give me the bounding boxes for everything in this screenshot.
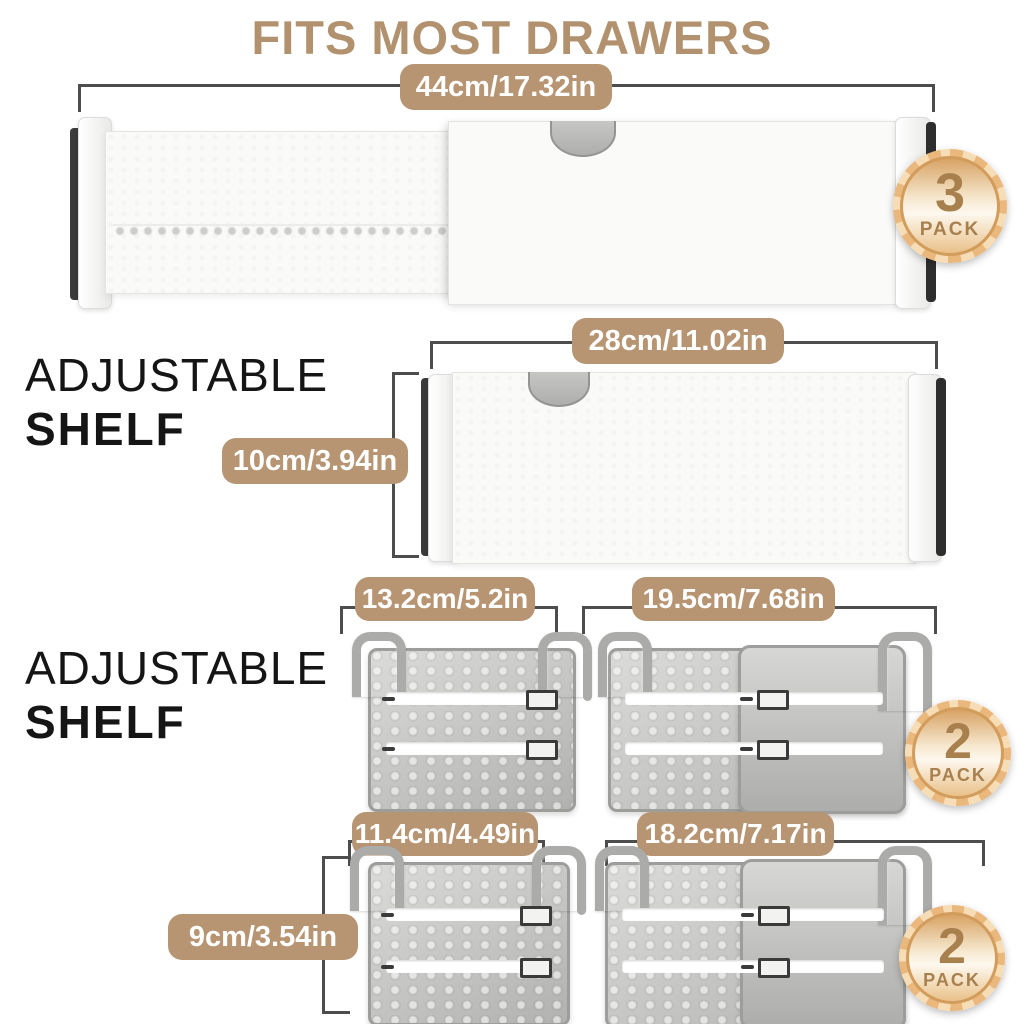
dim-tick-9cm-top — [322, 856, 350, 859]
dim-label-13cm: 13.2cm/5.2in — [355, 577, 535, 621]
dim-tick-44cm-right — [932, 84, 935, 112]
panel-13cm-latch-1 — [526, 690, 558, 710]
pack-badge-3-inner: 3 PACK — [900, 156, 1000, 256]
product-infographic: FITS MOST DRAWERS 44cm/17.32in 3 PACK AD… — [0, 0, 1024, 1024]
dim-label-44cm: 44cm/17.32in — [400, 64, 612, 110]
panel-13cm-pin-1 — [382, 697, 395, 701]
pack-badge-2-row1-label: PACK — [929, 765, 987, 786]
section-label-adjustable-shelf-1: ADJUSTABLE SHELF — [25, 352, 328, 452]
page-title: FITS MOST DRAWERS — [0, 10, 1024, 65]
adjustable-text-2: ADJUSTABLE — [25, 645, 328, 691]
panel-19cm-hook-right — [878, 632, 932, 711]
panel-18cm-latch-2 — [758, 958, 790, 978]
pack-badge-2-row1: 2 PACK — [905, 700, 1011, 806]
panel-11cm-pin-1 — [381, 913, 394, 917]
divider-ratchet-teeth — [113, 224, 451, 241]
panel-11cm-latch-1 — [520, 906, 552, 926]
shelf-text-2: SHELF — [25, 699, 328, 745]
panel-19cm-latch-2 — [757, 740, 789, 760]
shelf1-right-pad — [936, 378, 946, 556]
panel-13cm-pin-2 — [382, 747, 395, 751]
dim-tick-18cm-right — [982, 840, 985, 866]
divider-slide-panel — [448, 121, 900, 305]
pack-badge-2-row2-inner: 2 PACK — [906, 912, 998, 1004]
pack-badge-2-row1-count: 2 — [944, 720, 972, 763]
panel-11cm-hook-right — [532, 846, 586, 911]
pack-badge-2-row2: 2 PACK — [899, 905, 1005, 1011]
dim-tick-19cm-right — [934, 606, 937, 634]
panel-13cm-latch-2 — [526, 740, 558, 760]
panel-13cm-hook-left — [352, 632, 406, 697]
dim-tick-10cm-top — [392, 372, 419, 375]
pack-badge-2-row1-inner: 2 PACK — [912, 707, 1004, 799]
panel-11cm-hook-left — [350, 846, 404, 911]
shelf1-body — [452, 372, 916, 564]
panel-11cm-latch-2 — [520, 958, 552, 978]
dim-label-9cm: 9cm/3.54in — [168, 914, 358, 960]
panel-19cm-hook-left — [598, 632, 652, 697]
dim-tick-13cm-right — [555, 606, 558, 634]
pack-badge-3-label: PACK — [920, 219, 980, 241]
dim-label-10cm: 10cm/3.94in — [222, 438, 408, 484]
pack-badge-2-row2-label: PACK — [923, 970, 981, 991]
dim-tick-10cm-bottom — [392, 555, 419, 558]
dim-label-28cm: 28cm/11.02in — [572, 318, 784, 364]
dim-tick-28cm-left — [430, 341, 433, 369]
adjustable-text-1: ADJUSTABLE — [25, 352, 328, 398]
pack-badge-3: 3 PACK — [893, 149, 1007, 263]
dim-tick-44cm-left — [78, 84, 81, 112]
panel-18cm-hook-left — [595, 846, 649, 911]
dim-label-18cm: 18.2cm/7.17in — [637, 812, 834, 856]
dim-tick-9cm-bottom — [322, 1011, 350, 1014]
dim-label-19cm: 19.5cm/7.68in — [632, 577, 835, 621]
section-label-adjustable-shelf-2: ADJUSTABLE SHELF — [25, 645, 328, 745]
dim-tick-19cm-left — [582, 606, 585, 634]
panel-19cm-slot-1 — [625, 692, 883, 705]
panel-19cm-slot-2 — [625, 742, 883, 755]
panel-13cm-hook-right — [538, 632, 592, 697]
panel-19cm-pin-2 — [740, 747, 753, 751]
panel-19cm-pin-1 — [740, 697, 753, 701]
pack-badge-3-count: 3 — [935, 171, 965, 217]
panel-18cm-pin-1 — [741, 913, 754, 917]
panel-11cm-pin-2 — [381, 965, 394, 969]
panel-19cm-latch-1 — [757, 690, 789, 710]
panel-18cm-latch-1 — [758, 906, 790, 926]
pack-badge-2-row2-count: 2 — [938, 925, 966, 968]
dim-tick-13cm-left — [340, 606, 343, 634]
dim-tick-28cm-right — [935, 341, 938, 369]
panel-18cm-pin-2 — [741, 965, 754, 969]
divider-body — [105, 131, 457, 294]
